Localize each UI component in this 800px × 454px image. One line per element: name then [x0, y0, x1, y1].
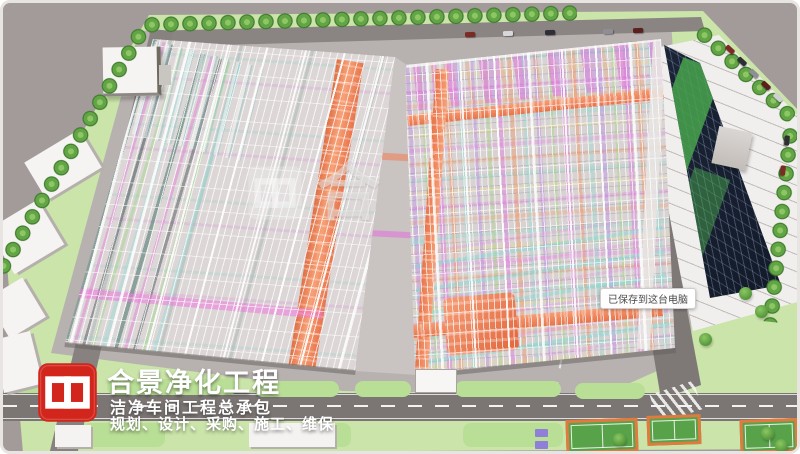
save-status-tooltip: 已保存到这台电脑 — [600, 288, 696, 309]
parking-marker — [535, 441, 548, 449]
tree — [699, 333, 712, 346]
car — [784, 135, 790, 145]
hejing-logo-icon — [246, 162, 304, 224]
tree — [775, 439, 788, 452]
bim-site-render: 合 已保存到这台电脑 合景净化工程 洁净车间工程总承包 规划、设计、采购、施工、… — [0, 0, 800, 454]
watermark: 合 — [246, 161, 380, 225]
verge-strip — [575, 383, 645, 399]
verge-strip — [355, 381, 411, 397]
utility-annex — [159, 65, 171, 85]
car — [465, 32, 475, 37]
car — [780, 165, 786, 175]
car — [603, 29, 613, 34]
verge-strip — [463, 423, 563, 447]
company-services: 规划、设计、采购、施工、维保 — [110, 413, 334, 434]
paved-slab — [55, 425, 91, 447]
entrance-canopy — [415, 369, 457, 393]
tree — [613, 433, 626, 446]
tree — [761, 427, 774, 440]
watermark-text: 合 — [316, 161, 380, 225]
sports-court — [646, 414, 701, 446]
verge-strip — [455, 381, 561, 397]
car — [503, 31, 513, 36]
car — [545, 30, 555, 35]
hejing-logo-icon — [36, 362, 99, 423]
sports-court — [565, 418, 638, 454]
car — [633, 28, 643, 33]
parking-marker — [535, 429, 548, 437]
tree — [755, 305, 768, 318]
tree — [739, 287, 752, 300]
